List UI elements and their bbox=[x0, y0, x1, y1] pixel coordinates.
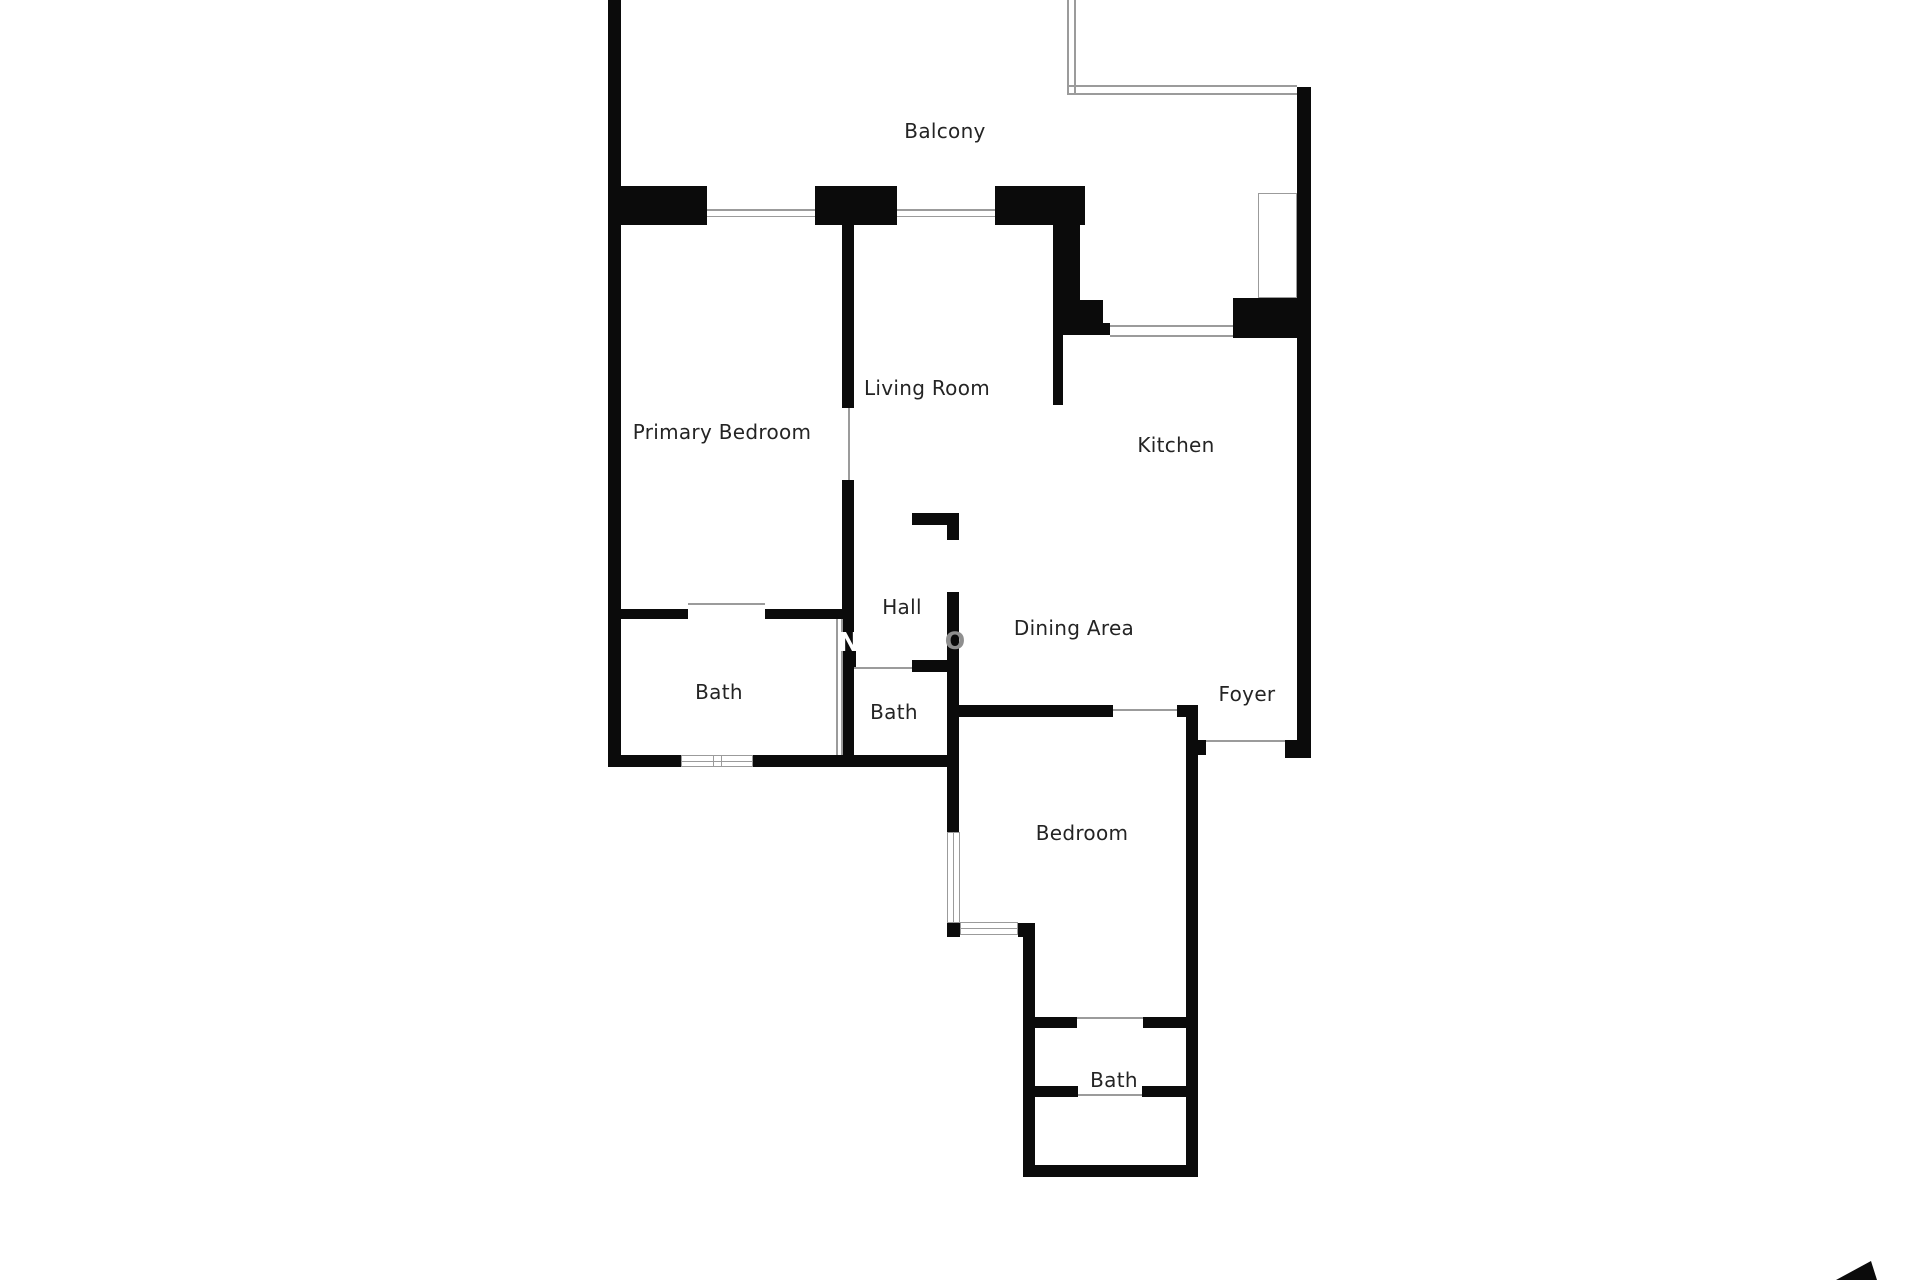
wall-segment bbox=[1198, 740, 1206, 755]
room-label-primary-bedroom: Primary Bedroom bbox=[633, 420, 812, 444]
room-label-living-room: Living Room bbox=[864, 376, 990, 400]
wall-segment bbox=[959, 705, 1113, 717]
window bbox=[1258, 193, 1297, 298]
wall-segment bbox=[995, 186, 1085, 225]
wall-segment bbox=[947, 525, 959, 540]
room-label-kitchen: Kitchen bbox=[1137, 433, 1214, 457]
wall-segment bbox=[608, 0, 621, 767]
wall-segment bbox=[912, 660, 952, 672]
wall-segment bbox=[1023, 937, 1035, 1177]
room-label-dining-area: Dining Area bbox=[1014, 616, 1134, 640]
room-label-foyer: Foyer bbox=[1219, 682, 1276, 706]
room-label-hall: Hall bbox=[882, 595, 922, 619]
wall-segment bbox=[608, 186, 707, 225]
thin-line bbox=[854, 667, 912, 669]
thin-line bbox=[1113, 709, 1177, 711]
wall-segment bbox=[912, 513, 959, 525]
wall-segment bbox=[765, 609, 842, 619]
wall-segment bbox=[842, 480, 854, 767]
room-label-bath: Bath bbox=[870, 700, 918, 724]
thin-line bbox=[1078, 1094, 1142, 1096]
wall-segment bbox=[1053, 335, 1063, 405]
thin-line bbox=[960, 928, 1018, 929]
wall-segment bbox=[947, 923, 960, 937]
wall-segment bbox=[1297, 87, 1311, 758]
floorplan: BalconyLiving RoomPrimary BedroomKitchen… bbox=[0, 0, 1920, 1280]
wall-segment bbox=[1143, 1017, 1186, 1028]
room-label-bath: Bath bbox=[695, 680, 743, 704]
thin-line bbox=[1077, 1017, 1143, 1019]
thin-line bbox=[848, 408, 850, 480]
wall-segment bbox=[1103, 323, 1110, 335]
thin-line bbox=[1067, 0, 1069, 95]
wall-segment bbox=[1018, 923, 1035, 937]
thin-line bbox=[897, 209, 995, 211]
wall-segment bbox=[1142, 1086, 1186, 1097]
wall-segment bbox=[608, 755, 681, 767]
watermark-letter: O bbox=[945, 627, 965, 655]
wall-segment bbox=[1053, 225, 1080, 335]
room-label-bedroom: Bedroom bbox=[1036, 821, 1129, 845]
watermark-letter: N bbox=[838, 628, 860, 658]
thin-line bbox=[1067, 93, 1297, 95]
thin-line bbox=[1206, 740, 1285, 742]
thin-line bbox=[1067, 85, 1297, 87]
thin-line bbox=[1110, 335, 1233, 337]
wall-segment bbox=[753, 755, 947, 767]
thin-line bbox=[688, 603, 765, 605]
wall-segment bbox=[1080, 300, 1103, 335]
thin-line bbox=[1110, 325, 1233, 327]
wall-segment bbox=[621, 609, 688, 619]
wall-segment bbox=[842, 225, 854, 408]
thin-line bbox=[953, 832, 954, 923]
thin-line bbox=[707, 216, 815, 217]
wall-segment bbox=[1035, 1086, 1078, 1097]
wall-segment bbox=[815, 186, 897, 225]
wall-segment bbox=[1233, 298, 1297, 338]
room-label-balcony: Balcony bbox=[904, 119, 985, 143]
thin-line bbox=[707, 209, 815, 211]
thin-line bbox=[897, 216, 995, 217]
thin-line bbox=[1074, 0, 1076, 95]
wall-segment bbox=[1186, 705, 1198, 1177]
wall-segment bbox=[1285, 740, 1311, 758]
thin-line bbox=[681, 761, 753, 762]
wall-segment bbox=[1023, 1165, 1198, 1177]
room-label-bath: Bath bbox=[1090, 1068, 1138, 1092]
wall-segment bbox=[1035, 1017, 1077, 1028]
